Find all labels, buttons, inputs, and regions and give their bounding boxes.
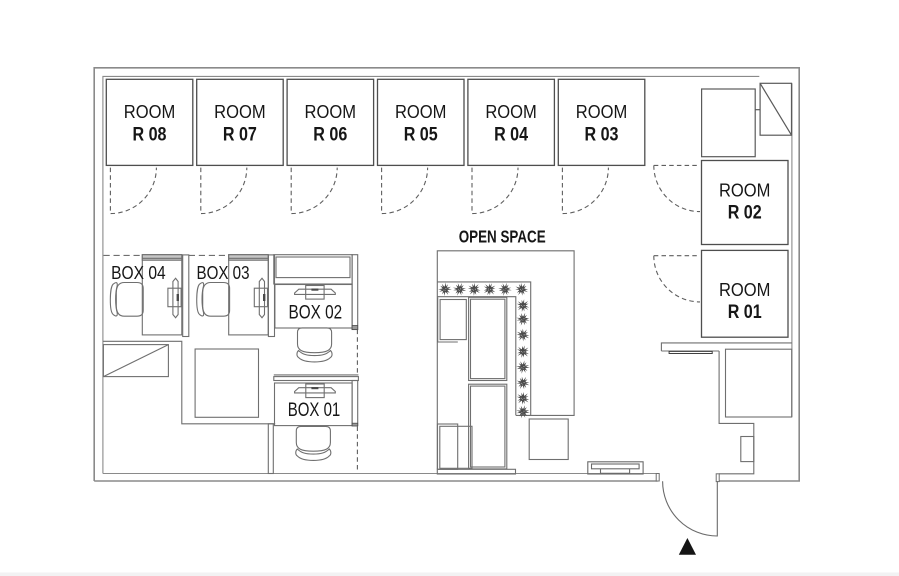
svg-text:ROOM: ROOM	[719, 279, 771, 300]
svg-text:ROOM: ROOM	[719, 180, 771, 201]
svg-text:R 06: R 06	[313, 123, 347, 145]
svg-text:R 08: R 08	[133, 123, 167, 145]
svg-text:R 05: R 05	[404, 123, 438, 145]
svg-text:ROOM: ROOM	[214, 101, 266, 122]
svg-text:ROOM: ROOM	[124, 101, 176, 122]
svg-text:R 03: R 03	[585, 123, 619, 145]
svg-text:ROOM: ROOM	[576, 101, 628, 122]
svg-text:BOX 02: BOX 02	[289, 303, 343, 324]
svg-text:OPEN SPACE: OPEN SPACE	[459, 226, 546, 246]
svg-text:R 01: R 01	[728, 301, 762, 323]
svg-text:R 07: R 07	[223, 123, 257, 145]
svg-text:R 04: R 04	[494, 123, 528, 145]
svg-text:ROOM: ROOM	[305, 101, 357, 122]
svg-text:BOX 03: BOX 03	[197, 263, 250, 283]
svg-text:BOX 04: BOX 04	[111, 263, 166, 283]
svg-text:ROOM: ROOM	[485, 101, 537, 122]
svg-text:R 02: R 02	[728, 202, 762, 224]
svg-text:ROOM: ROOM	[395, 101, 447, 122]
svg-text:BOX 01: BOX 01	[288, 400, 341, 421]
